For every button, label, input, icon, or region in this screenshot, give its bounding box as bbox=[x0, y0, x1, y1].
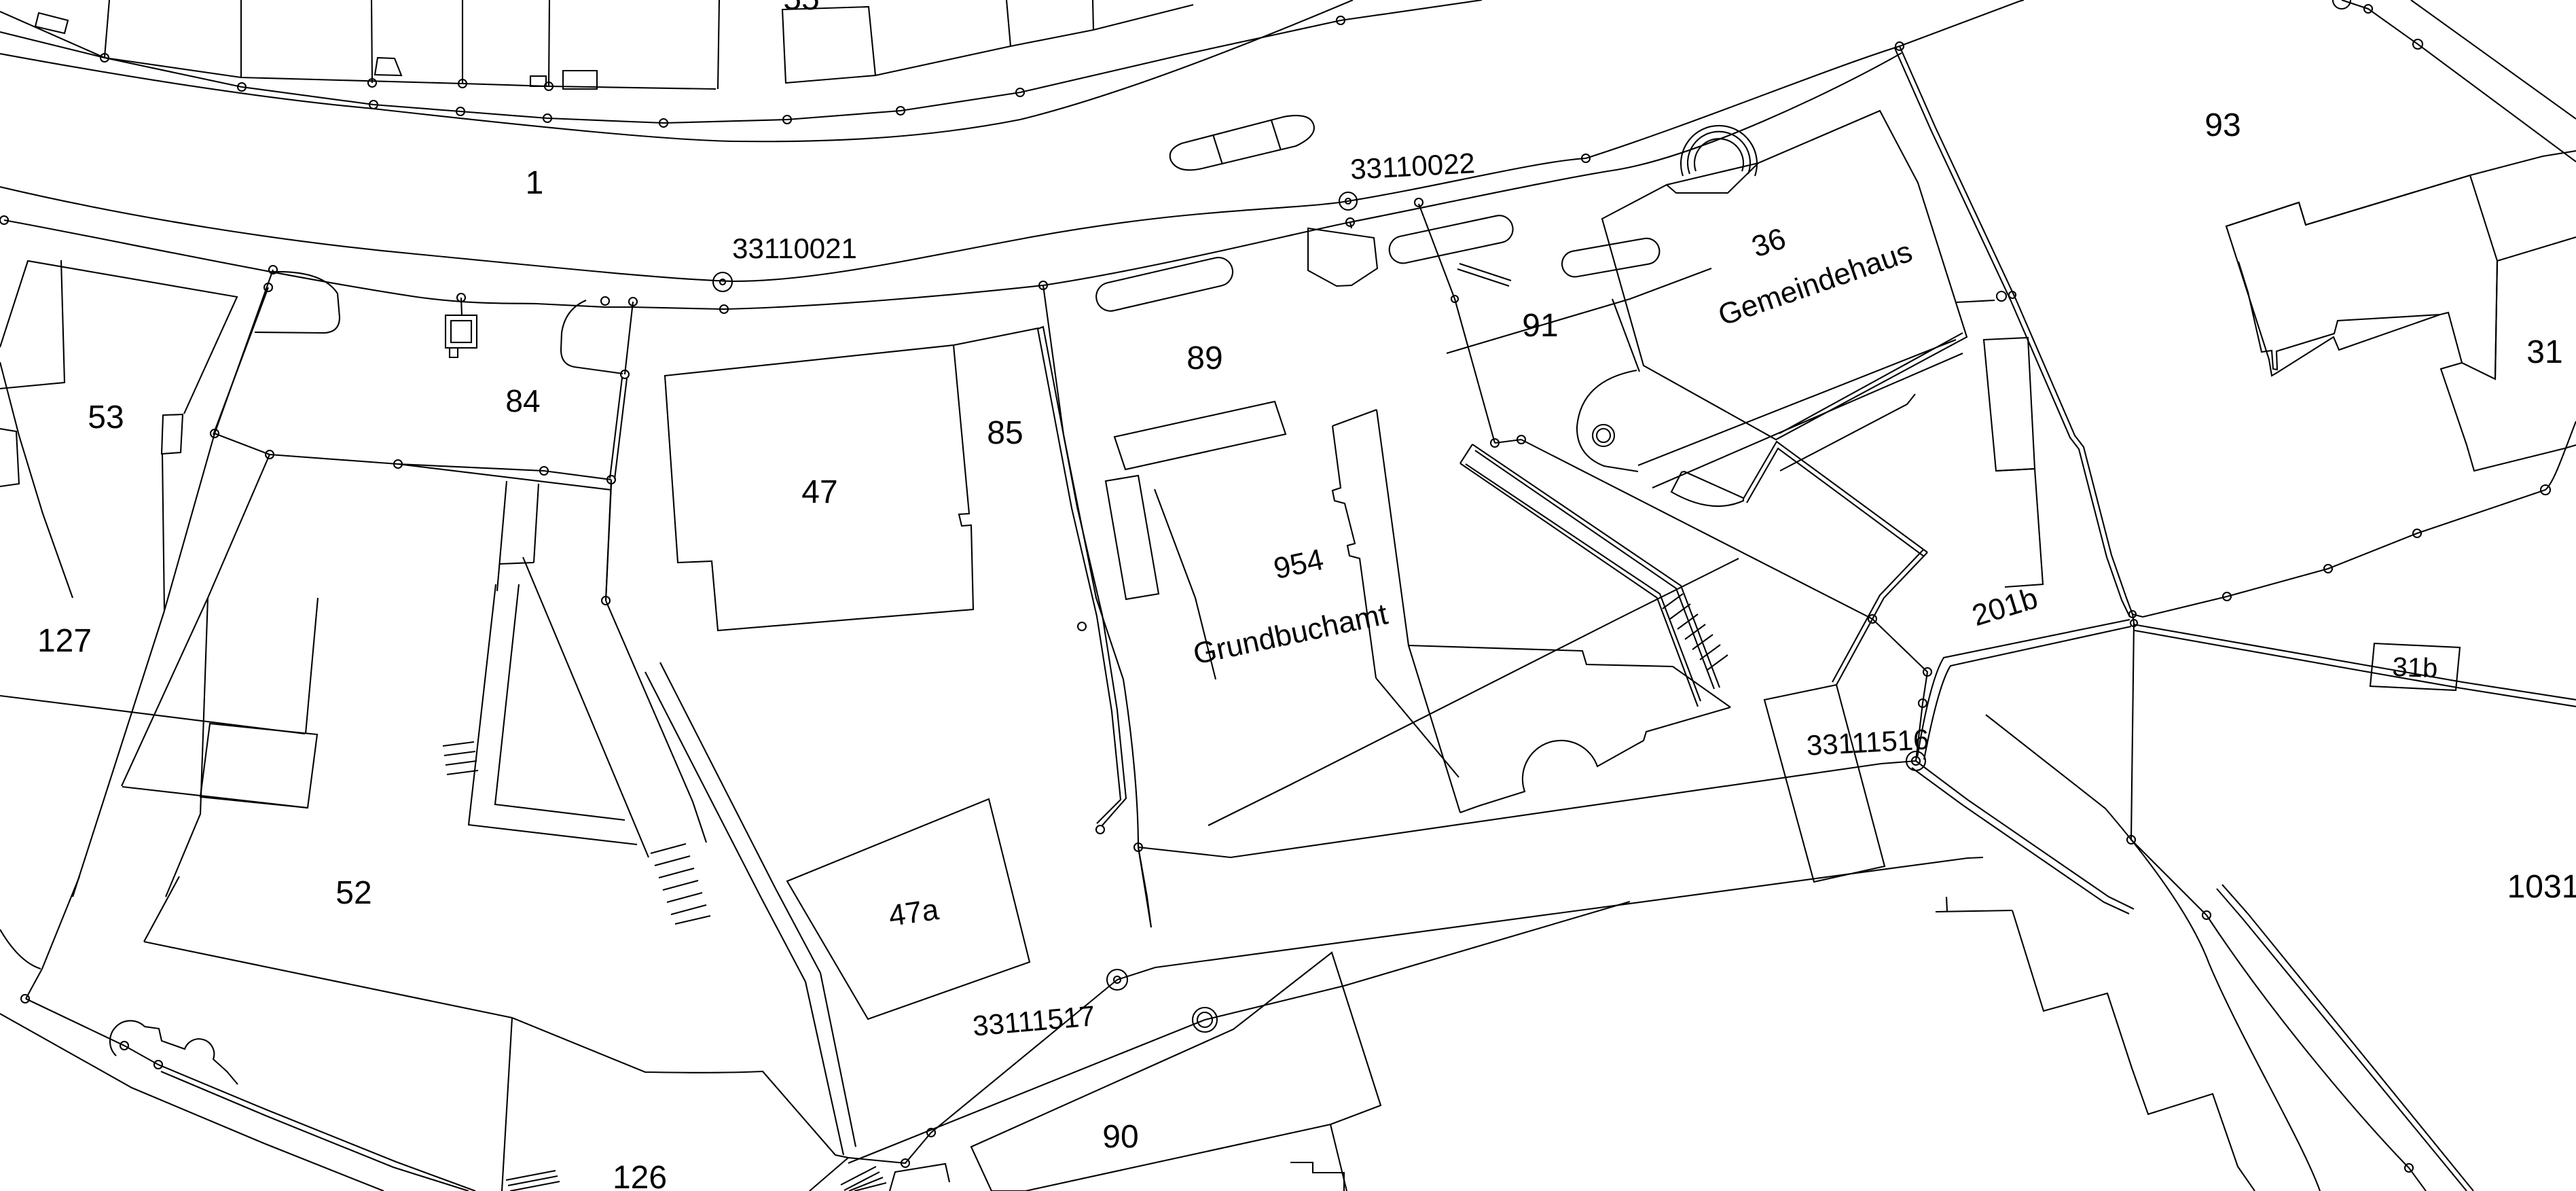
svg-text:1: 1 bbox=[526, 165, 544, 201]
svg-text:Gemeindehaus: Gemeindehaus bbox=[1714, 235, 1917, 332]
svg-text:31b: 31b bbox=[2392, 652, 2438, 683]
svg-text:201b: 201b bbox=[1968, 582, 2042, 633]
svg-text:954: 954 bbox=[1271, 543, 1326, 586]
svg-text:53: 53 bbox=[88, 399, 124, 435]
svg-text:33111517: 33111517 bbox=[971, 999, 1096, 1042]
svg-text:31: 31 bbox=[2526, 334, 2562, 370]
svg-text:91: 91 bbox=[1522, 308, 1558, 344]
svg-text:127: 127 bbox=[37, 623, 92, 659]
svg-text:85: 85 bbox=[987, 415, 1023, 451]
svg-text:84: 84 bbox=[505, 383, 540, 419]
svg-text:47a: 47a bbox=[887, 893, 941, 933]
svg-text:Grundbuchamt: Grundbuchamt bbox=[1191, 597, 1391, 671]
svg-text:55: 55 bbox=[783, 0, 819, 17]
svg-text:126: 126 bbox=[613, 1160, 667, 1191]
svg-text:89: 89 bbox=[1186, 340, 1222, 376]
svg-text:36: 36 bbox=[1747, 221, 1790, 264]
svg-text:33110022: 33110022 bbox=[1349, 147, 1476, 185]
svg-text:33111516: 33111516 bbox=[1806, 723, 1930, 761]
svg-text:33110021: 33110021 bbox=[732, 232, 857, 264]
svg-text:90: 90 bbox=[1102, 1119, 1138, 1155]
svg-text:47: 47 bbox=[801, 474, 837, 510]
svg-text:93: 93 bbox=[2205, 107, 2241, 143]
svg-text:52: 52 bbox=[335, 875, 371, 911]
svg-text:1031: 1031 bbox=[2507, 869, 2576, 905]
